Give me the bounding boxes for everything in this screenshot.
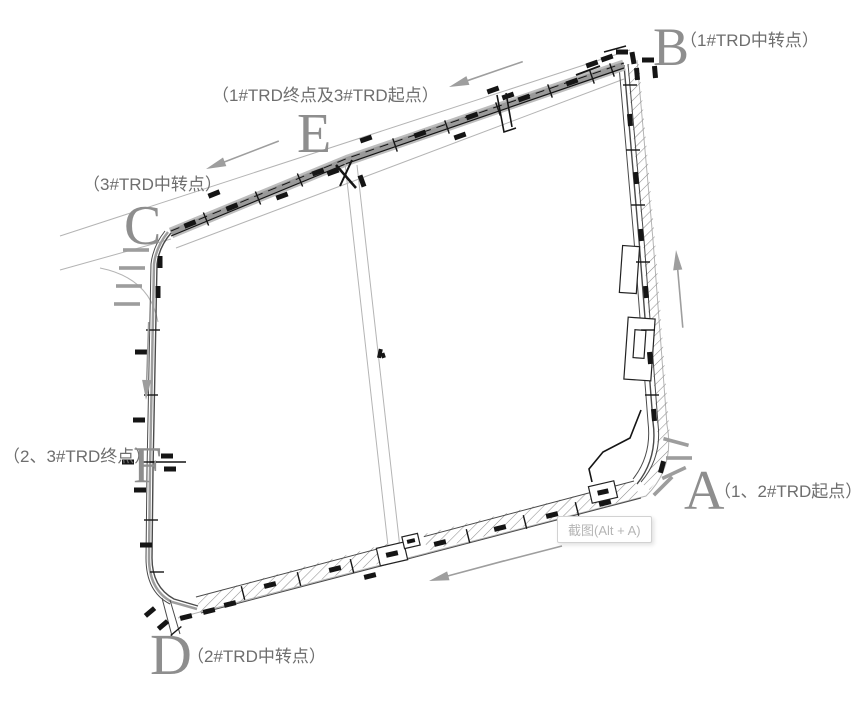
corner-a-structures	[588, 410, 692, 503]
point-note-c: （3#TRD中转点）	[83, 174, 222, 196]
point-note-b: （1#TRD中转点）	[680, 30, 819, 52]
bottom-edge-hatch-band	[196, 481, 641, 613]
direction-arrow-bottom	[428, 556, 506, 585]
direction-arrow-right-up	[671, 250, 687, 329]
point-note-d: （2#TRD中转点）	[187, 646, 326, 668]
point-label-e: E	[297, 106, 331, 162]
direction-arrow-top	[448, 57, 525, 91]
left-boundary-line	[146, 231, 198, 636]
point-label-f: F	[133, 440, 162, 492]
point-letter-e: E	[297, 106, 331, 162]
point-letter-f: F	[133, 440, 162, 492]
point-letter-d: D	[150, 626, 192, 684]
point-note-a: （1、2#TRD起点）	[714, 481, 860, 503]
interior-road	[345, 163, 400, 548]
screenshot-hint: 截图(Alt + A)	[557, 516, 652, 543]
point-label-d: D	[150, 626, 192, 684]
cad-site-plan: B （1#TRD中转点） （1#TRD终点及3#TRD起点） E （3#TRD中…	[0, 0, 860, 711]
point-label-c: C	[124, 198, 161, 254]
point-letter-c: C	[124, 198, 161, 254]
point-note-f: （2、3#TRD终点）	[3, 446, 151, 468]
